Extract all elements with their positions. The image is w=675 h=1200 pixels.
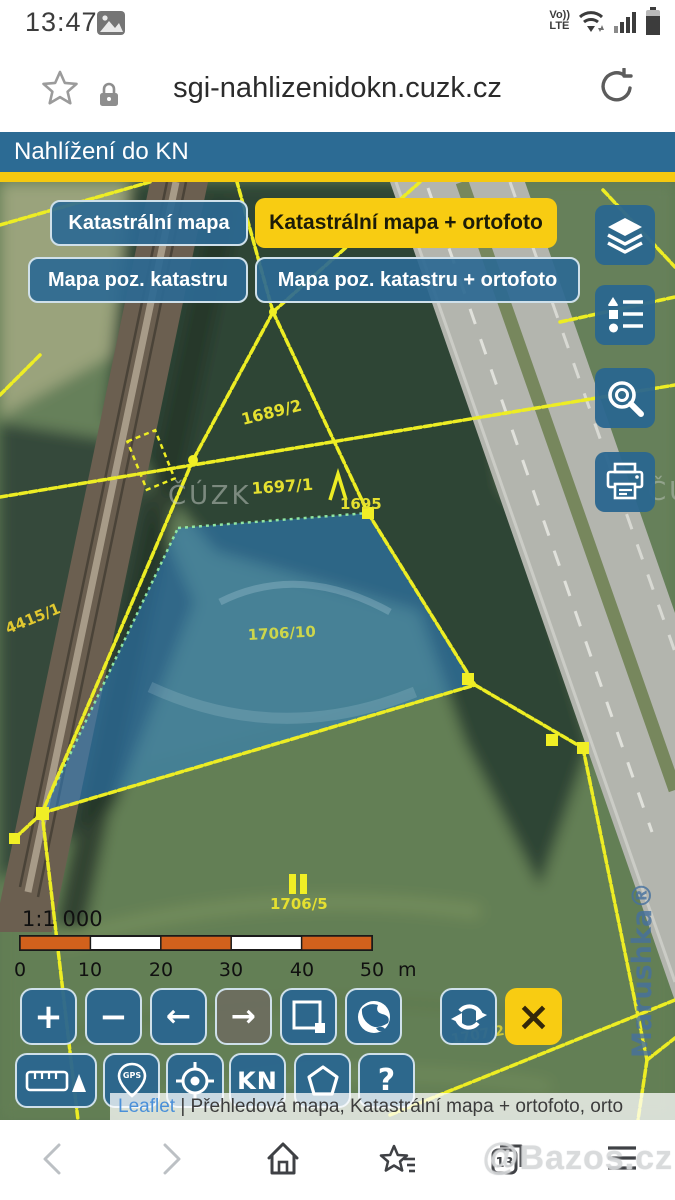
pan-forward-button[interactable]: → — [215, 988, 272, 1045]
attribution-layers: Přehledová mapa, Katastrální mapa + orto… — [191, 1096, 624, 1118]
refresh-map-button[interactable] — [440, 988, 497, 1045]
header-accent-bar — [0, 172, 675, 182]
sync-icon — [448, 996, 490, 1038]
scale-ratio: 1:1 000 — [22, 907, 103, 931]
back-button[interactable] — [36, 1140, 70, 1178]
measure-button[interactable] — [15, 1053, 97, 1108]
marushka-watermark: Marushka® — [627, 882, 658, 1058]
rectangle-select-icon — [290, 998, 328, 1036]
zoom-extent-button[interactable] — [280, 988, 337, 1045]
search-icon — [604, 377, 646, 419]
button-mapa-poz-katastru-ortofoto[interactable]: Mapa poz. katastru + ortofoto — [255, 257, 580, 303]
svg-text:40: 40 — [290, 959, 314, 981]
parcel-label: 1706/5 — [270, 895, 328, 913]
button-mapa-poz-katastru[interactable]: Mapa poz. katastru — [28, 257, 248, 303]
svg-text:GPS: GPS — [122, 1071, 140, 1080]
signal-bars-icon — [614, 6, 638, 34]
svg-text:20: 20 — [149, 959, 173, 981]
battery-icon — [645, 6, 661, 36]
button-katastralni-mapa[interactable]: Katastrální mapa — [50, 200, 248, 246]
app-header: Nahlížení do KN — [0, 132, 675, 172]
svg-text:50: 50 — [360, 959, 384, 981]
bookmarks-button[interactable] — [378, 1140, 418, 1178]
close-toolbar-button[interactable]: × — [505, 988, 562, 1045]
layers-icon — [605, 216, 645, 254]
globe-icon — [354, 997, 394, 1037]
legend-button[interactable] — [595, 285, 655, 345]
clock: 13:47 — [25, 7, 98, 38]
print-button[interactable] — [595, 452, 655, 512]
svg-text:30: 30 — [219, 959, 243, 981]
url-text[interactable]: sgi-nahlizenidokn.cuzk.cz — [0, 72, 675, 105]
pan-back-button[interactable]: ← — [150, 988, 207, 1045]
map-attribution: Leaflet | Přehledová mapa, Katastrální m… — [110, 1093, 675, 1120]
status-bar: 13:47 Vo)) LTE — [0, 0, 675, 46]
parcel-label: 1706/10 — [247, 622, 316, 644]
ruler-icon — [25, 1065, 87, 1097]
refresh-icon[interactable] — [595, 68, 637, 110]
zoom-in-button[interactable]: + — [20, 988, 77, 1045]
forward-button[interactable] — [154, 1140, 188, 1178]
layers-button[interactable] — [595, 205, 655, 265]
map-canvas[interactable]: 1689/2 1697/1 1695 4415/1 1706/10 1706/5… — [0, 182, 675, 1120]
browser-address-bar[interactable]: sgi-nahlizenidokn.cuzk.cz — [0, 46, 675, 132]
scale-unit: m — [398, 959, 417, 981]
leaflet-link[interactable]: Leaflet — [118, 1096, 175, 1118]
wifi-icon — [577, 6, 607, 34]
screenshot-notification-icon — [96, 10, 126, 36]
zoom-out-button[interactable]: − — [85, 988, 142, 1045]
legend-icon — [605, 296, 645, 334]
search-button[interactable] — [595, 368, 655, 428]
bazos-watermark: @Bazos.cz — [482, 1136, 673, 1178]
svg-text:0: 0 — [14, 959, 26, 981]
print-icon — [604, 462, 646, 502]
cuzk-watermark: ČÚZK — [168, 479, 252, 511]
button-katastralni-mapa-ortofoto-active[interactable]: Katastrální mapa + ortofoto — [255, 198, 557, 248]
map-graphics: 1689/2 1697/1 1695 4415/1 1706/10 1706/5… — [0, 182, 675, 1120]
page-title: Nahlížení do KN — [14, 132, 189, 172]
browser-bottom-nav: 13 @Bazos.cz — [0, 1120, 675, 1200]
overview-map-button[interactable] — [345, 988, 402, 1045]
parcel-label: 1695 — [340, 495, 382, 513]
home-button[interactable] — [264, 1140, 302, 1178]
volte-indicator: Vo)) LTE — [549, 10, 570, 32]
svg-text:10: 10 — [78, 959, 102, 981]
phone-screen: 13:47 Vo)) LTE — [0, 0, 675, 1200]
